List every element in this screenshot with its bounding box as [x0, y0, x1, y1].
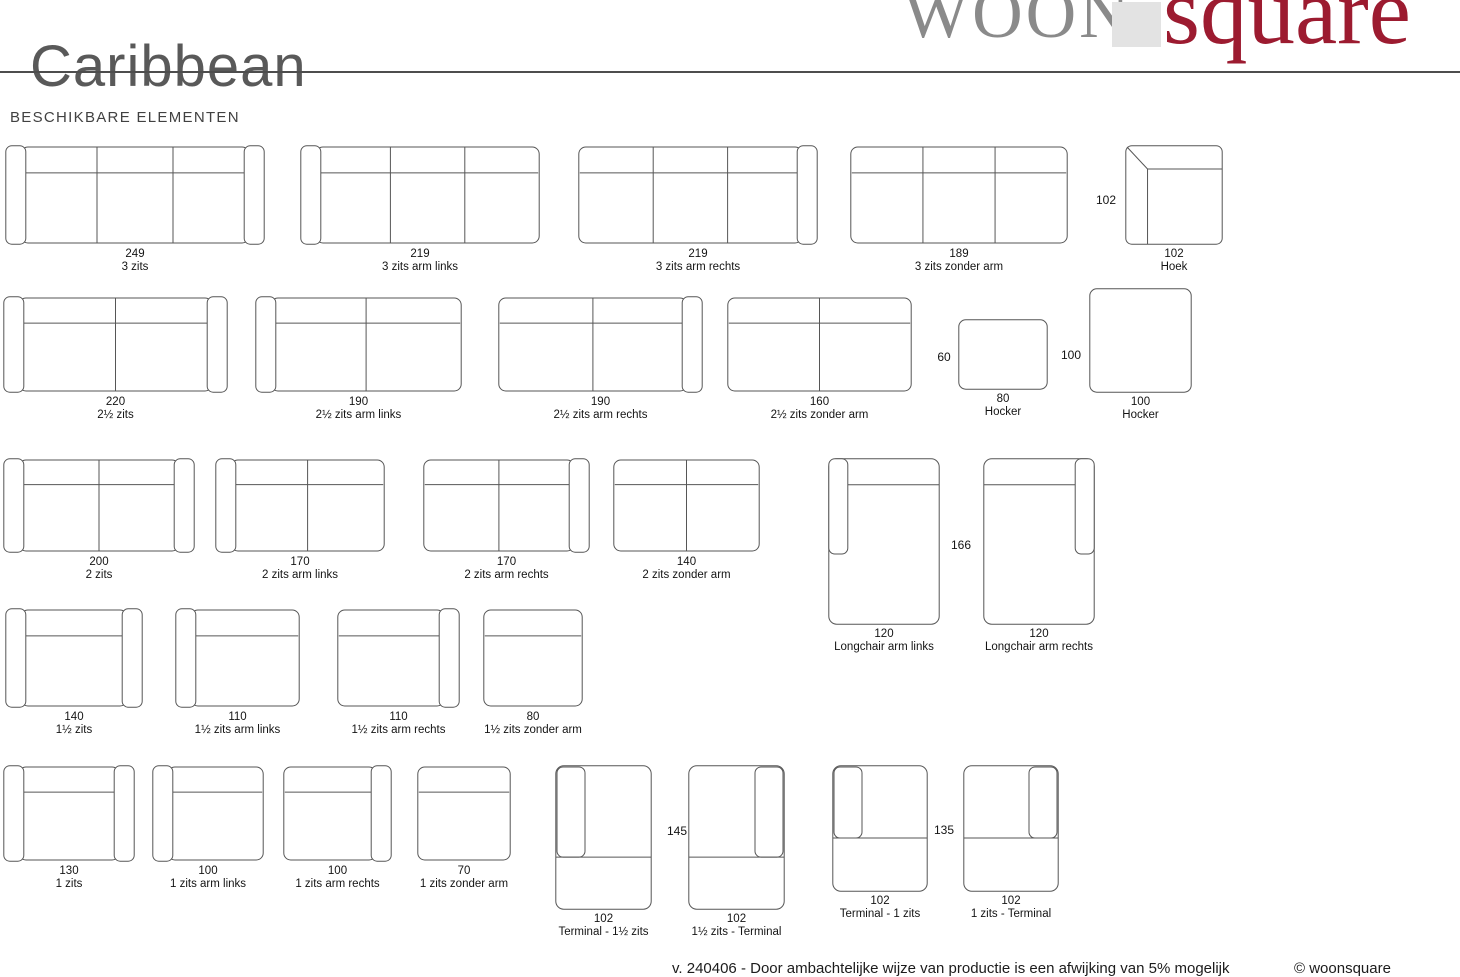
- element-size-label: 189: [915, 248, 1003, 261]
- element-label: 102Hoek: [1161, 248, 1188, 273]
- element-sofa-diagram: [850, 145, 1068, 245]
- element-label: 1401½ zits: [56, 711, 92, 736]
- element-size-label: 102: [692, 913, 782, 926]
- element-size-label: 160: [771, 396, 869, 409]
- element-label: 2002 zits: [86, 556, 113, 581]
- element-name-label: 2½ zits arm rechts: [554, 409, 648, 422]
- element-size-label: 249: [122, 248, 149, 261]
- element-label: 1301 zits: [56, 865, 83, 890]
- footer-disclaimer: v. 240406 - Door ambachtelijke wijze van…: [672, 960, 1230, 977]
- element-sofa-diagram: [255, 296, 462, 393]
- element-size-label: 110: [352, 711, 446, 724]
- elements-canvas: 2493 zits2193 zits arm links2193 zits ar…: [0, 0, 1460, 974]
- element-size-label: 220: [97, 396, 133, 409]
- element-label: 102Terminal - 1 zits: [840, 895, 921, 920]
- dimension-label: 166: [951, 538, 971, 552]
- element-sofa-diagram: [423, 458, 590, 553]
- element-label: 1893 zits zonder arm: [915, 248, 1003, 273]
- element-sofa-diagram: [498, 296, 703, 393]
- element-outline-graphic: [828, 458, 940, 625]
- element-outline-graphic: [5, 145, 265, 245]
- element-size-label: 140: [56, 711, 92, 724]
- element-size-label: 170: [262, 556, 338, 569]
- element-outline-graphic: [1125, 145, 1223, 245]
- element-outline-graphic: [1089, 288, 1192, 393]
- element-name-label: Hoek: [1161, 261, 1188, 274]
- element-outline-graphic: [832, 765, 928, 892]
- element-outline-graphic: [152, 765, 264, 862]
- element-outline-graphic: [613, 458, 760, 553]
- element-outline-graphic: [215, 458, 385, 553]
- element-label: 2202½ zits: [97, 396, 133, 421]
- element-corner-diagram: [1125, 145, 1223, 245]
- element-outline-graphic: [283, 765, 392, 862]
- element-outline-graphic: [727, 296, 912, 393]
- element-sofa-diagram: [3, 458, 195, 553]
- element-outline-graphic: [3, 296, 228, 393]
- element-longchair-diagram: [828, 458, 940, 625]
- element-sofa-diagram: [175, 608, 300, 708]
- element-label: 2493 zits: [122, 248, 149, 273]
- element-label: 1902½ zits arm rechts: [554, 396, 648, 421]
- element-name-label: 1 zits arm rechts: [295, 878, 379, 891]
- element-size-label: 100: [1122, 396, 1158, 409]
- element-name-label: 2 zits zonder arm: [642, 569, 730, 582]
- element-terminal-diagram: [688, 765, 785, 910]
- element-terminal-diagram: [832, 765, 928, 892]
- element-terminal-diagram: [555, 765, 652, 910]
- element-size-label: 219: [656, 248, 740, 261]
- element-sofa-diagram: [578, 145, 818, 245]
- element-size-label: 102: [840, 895, 921, 908]
- element-outline-graphic: [958, 319, 1048, 390]
- element-longchair-diagram: [983, 458, 1095, 625]
- element-name-label: 1½ zits arm rechts: [352, 724, 446, 737]
- element-name-label: Terminal - 1½ zits: [558, 926, 648, 939]
- element-label: 1402 zits zonder arm: [642, 556, 730, 581]
- element-sofa-diagram: [5, 608, 143, 708]
- element-outline-graphic: [300, 145, 540, 245]
- element-outline-graphic: [255, 296, 462, 393]
- element-name-label: 1½ zits: [56, 724, 92, 737]
- element-name-label: 1 zits: [56, 878, 83, 891]
- element-label: 1001 zits arm links: [170, 865, 246, 890]
- element-label: 1101½ zits arm rechts: [352, 711, 446, 736]
- element-name-label: Terminal - 1 zits: [840, 908, 921, 921]
- element-label: 80Hocker: [985, 393, 1021, 418]
- element-outline-graphic: [498, 296, 703, 393]
- element-label: 2193 zits arm rechts: [656, 248, 740, 273]
- element-label: 1021½ zits - Terminal: [692, 913, 782, 938]
- element-name-label: 2 zits arm rechts: [464, 569, 548, 582]
- element-sofa-diagram: [283, 765, 392, 862]
- dimension-label: 102: [1096, 193, 1116, 207]
- element-sofa-diagram: [337, 608, 460, 708]
- element-sofa-diagram: [483, 608, 583, 708]
- element-outline-graphic: [3, 458, 195, 553]
- element-size-label: 102: [558, 913, 648, 926]
- element-name-label: 2½ zits arm links: [316, 409, 402, 422]
- element-sofa-diagram: [215, 458, 385, 553]
- element-outline-graphic: [688, 765, 785, 910]
- dimension-label: 100: [1061, 348, 1081, 362]
- element-name-label: 3 zits: [122, 261, 149, 274]
- element-name-label: 1½ zits - Terminal: [692, 926, 782, 939]
- element-outline-graphic: [483, 608, 583, 708]
- element-label: 1101½ zits arm links: [195, 711, 281, 736]
- element-name-label: Longchair arm rechts: [985, 641, 1093, 654]
- element-label: 1702 zits arm links: [262, 556, 338, 581]
- element-label: 100Hocker: [1122, 396, 1158, 421]
- element-name-label: 3 zits arm links: [382, 261, 458, 274]
- element-sofa-diagram: [727, 296, 912, 393]
- element-hocker-diagram: [958, 319, 1048, 390]
- dimension-label: 135: [934, 823, 954, 837]
- element-hocker-diagram: [1089, 288, 1192, 393]
- element-name-label: 1½ zits arm links: [195, 724, 281, 737]
- element-sofa-diagram: [613, 458, 760, 553]
- element-label: 701 zits zonder arm: [420, 865, 508, 890]
- element-outline-graphic: [423, 458, 590, 553]
- element-outline-graphic: [850, 145, 1068, 245]
- page: Caribbean WOON square BESCHIKBARE ELEMEN…: [0, 0, 1460, 974]
- element-name-label: 1½ zits zonder arm: [484, 724, 582, 737]
- element-size-label: 100: [295, 865, 379, 878]
- footer-copyright: © woonsquare: [1294, 960, 1391, 977]
- element-size-label: 110: [195, 711, 281, 724]
- element-size-label: 219: [382, 248, 458, 261]
- element-name-label: Hocker: [1122, 409, 1158, 422]
- element-size-label: 80: [985, 393, 1021, 406]
- element-name-label: 1 zits zonder arm: [420, 878, 508, 891]
- element-outline-graphic: [5, 608, 143, 708]
- element-label: 1702 zits arm rechts: [464, 556, 548, 581]
- element-size-label: 190: [316, 396, 402, 409]
- dimension-label: 60: [937, 350, 950, 364]
- element-outline-graphic: [337, 608, 460, 708]
- element-name-label: Longchair arm links: [834, 641, 934, 654]
- element-sofa-diagram: [3, 296, 228, 393]
- element-outline-graphic: [3, 765, 135, 862]
- element-size-label: 190: [554, 396, 648, 409]
- element-label: 1001 zits arm rechts: [295, 865, 379, 890]
- element-name-label: 3 zits zonder arm: [915, 261, 1003, 274]
- element-size-label: 120: [985, 628, 1093, 641]
- element-label: 2193 zits arm links: [382, 248, 458, 273]
- element-outline-graphic: [578, 145, 818, 245]
- element-size-label: 200: [86, 556, 113, 569]
- element-label: 102Terminal - 1½ zits: [558, 913, 648, 938]
- element-name-label: 2 zits arm links: [262, 569, 338, 582]
- element-name-label: 2½ zits: [97, 409, 133, 422]
- element-size-label: 100: [170, 865, 246, 878]
- element-name-label: 3 zits arm rechts: [656, 261, 740, 274]
- element-outline-graphic: [175, 608, 300, 708]
- element-size-label: 140: [642, 556, 730, 569]
- element-sofa-diagram: [300, 145, 540, 245]
- element-name-label: Hocker: [985, 406, 1021, 419]
- element-outline-graphic: [417, 765, 511, 862]
- element-name-label: 2 zits: [86, 569, 113, 582]
- element-label: 1902½ zits arm links: [316, 396, 402, 421]
- element-name-label: 1 zits arm links: [170, 878, 246, 891]
- element-label: 120Longchair arm links: [834, 628, 934, 653]
- element-label: 801½ zits zonder arm: [484, 711, 582, 736]
- element-terminal-diagram: [963, 765, 1059, 892]
- dimension-label: 145: [667, 824, 687, 838]
- element-size-label: 80: [484, 711, 582, 724]
- element-outline-graphic: [983, 458, 1095, 625]
- element-label: 1021 zits - Terminal: [971, 895, 1051, 920]
- element-size-label: 170: [464, 556, 548, 569]
- element-name-label: 1 zits - Terminal: [971, 908, 1051, 921]
- element-name-label: 2½ zits zonder arm: [771, 409, 869, 422]
- element-label: 120Longchair arm rechts: [985, 628, 1093, 653]
- element-label: 1602½ zits zonder arm: [771, 396, 869, 421]
- element-size-label: 102: [1161, 248, 1188, 261]
- element-size-label: 120: [834, 628, 934, 641]
- element-sofa-diagram: [5, 145, 265, 245]
- element-size-label: 130: [56, 865, 83, 878]
- element-sofa-diagram: [152, 765, 264, 862]
- element-sofa-diagram: [417, 765, 511, 862]
- element-size-label: 102: [971, 895, 1051, 908]
- element-outline-graphic: [555, 765, 652, 910]
- element-outline-graphic: [963, 765, 1059, 892]
- element-size-label: 70: [420, 865, 508, 878]
- element-sofa-diagram: [3, 765, 135, 862]
